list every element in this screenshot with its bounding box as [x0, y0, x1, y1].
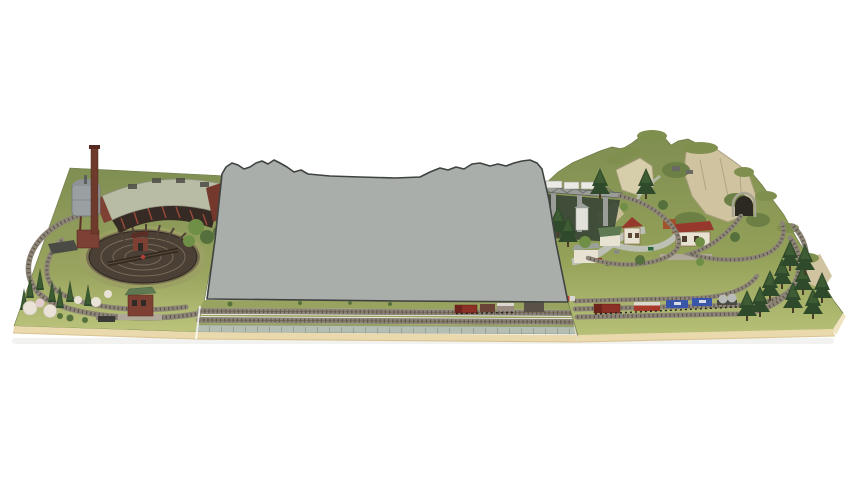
- house-window: [635, 233, 639, 238]
- turntable-hut: [141, 255, 145, 259]
- green-roof-house: [598, 226, 622, 246]
- silo-tower: [576, 208, 588, 230]
- bush: [228, 302, 233, 307]
- parked-shunter: [98, 316, 115, 322]
- bush: [388, 302, 392, 306]
- tunnel-portal: [733, 193, 755, 217]
- mountain-cabin: [672, 166, 680, 171]
- silo-tank: [728, 294, 737, 303]
- deciduous-tree: [579, 236, 591, 248]
- mountain-cabin: [686, 170, 693, 174]
- chimney-shaft: [91, 148, 98, 234]
- green-cap: [637, 130, 667, 142]
- gray-mask-silhouette: [207, 160, 568, 302]
- freight-loco-cab: [594, 304, 602, 313]
- signal-box-window: [141, 300, 146, 306]
- model-railway-photo: [0, 0, 850, 478]
- signal-box-window: [132, 300, 137, 306]
- silo-building: [574, 203, 590, 230]
- shuttle-loco-cab: [455, 305, 462, 313]
- deciduous-tree: [730, 232, 740, 242]
- yard-track-1: [200, 311, 573, 313]
- bush: [82, 317, 88, 323]
- annex-door: [138, 243, 143, 251]
- white-wagon: [546, 181, 562, 188]
- green-cap: [755, 191, 777, 201]
- white-wagon: [564, 182, 579, 189]
- deciduous-tree: [620, 203, 628, 211]
- silo-tank: [719, 295, 728, 304]
- tower-leg: [80, 214, 81, 232]
- green-cap: [682, 142, 718, 154]
- station-window: [682, 236, 687, 242]
- viaduct-pier: [603, 196, 608, 226]
- white-wagon: [581, 182, 594, 189]
- deciduous-tree: [696, 258, 704, 266]
- tank-finial: [84, 175, 87, 184]
- bush: [67, 315, 74, 322]
- green-cap: [606, 156, 626, 164]
- green-cap: [616, 147, 640, 157]
- container-label: [674, 302, 681, 305]
- deciduous-tree: [183, 235, 195, 247]
- shuttle-wagon-roof: [497, 303, 514, 306]
- container-label: [699, 300, 706, 303]
- deciduous-tree: [695, 237, 705, 247]
- yard-track-2: [199, 320, 574, 322]
- signal-box: [125, 287, 156, 316]
- deciduous-tree: [200, 230, 214, 244]
- car: [614, 250, 620, 254]
- house-window: [628, 233, 632, 238]
- bush: [57, 313, 63, 319]
- bridge-train: [546, 181, 594, 189]
- pink-bush: [36, 299, 45, 308]
- chimney-cap: [89, 145, 100, 149]
- tunnel-opening: [735, 196, 753, 216]
- green-cap: [734, 167, 754, 177]
- signal-box-wall: [128, 295, 153, 316]
- car: [648, 247, 654, 251]
- boxcar-roof: [634, 302, 660, 306]
- blossom-bush: [74, 296, 82, 304]
- deciduous-tree: [658, 200, 668, 210]
- blossom-bush: [44, 305, 57, 318]
- blossom-bush: [104, 290, 112, 298]
- shuttle-wagon-maroon: [480, 304, 495, 312]
- blossom-bush: [91, 297, 101, 307]
- bush: [348, 301, 352, 305]
- deciduous-tree: [635, 255, 645, 265]
- blossom-bush: [23, 301, 37, 315]
- bush: [298, 301, 302, 305]
- layout-illustration: [0, 0, 850, 478]
